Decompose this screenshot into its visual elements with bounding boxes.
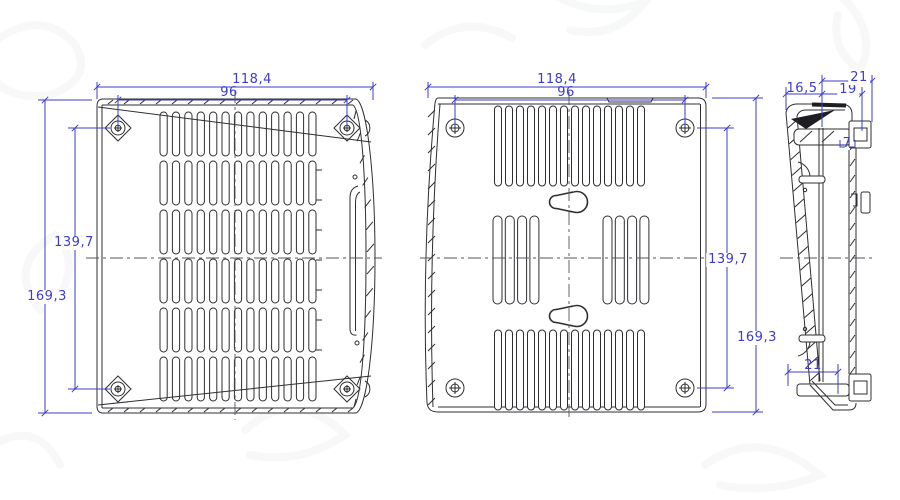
dim-side-depth-inner: 19 [837, 83, 859, 97]
dim-rear-width-holes: 96 [557, 86, 575, 100]
dim-side-depth-face: 16,5 [787, 82, 818, 96]
dim-side-clip-offset: 7 [843, 137, 852, 151]
dim-front-width-holes: 96 [220, 86, 238, 100]
dim-rear-height-outer: 169,3 [735, 331, 779, 345]
cad-drawing-sheet: 118,4 96 139,7 169,3 118,4 96 139,7 169,… [0, 0, 900, 500]
side-view-drawing [780, 104, 876, 410]
dim-rear-height-holes: 139,7 [706, 253, 750, 267]
side-wall-hatch [788, 120, 855, 390]
rear-view-drawing [420, 92, 718, 420]
dim-side-base-width: 21 [804, 359, 822, 373]
dim-front-height-outer: 169,3 [25, 290, 69, 304]
front-view-drawing [86, 90, 382, 420]
dim-front-width-outer: 118,4 [232, 73, 272, 87]
side-mid-tab [861, 192, 870, 213]
dim-side-depth-outer: 21 [848, 71, 870, 85]
cad-canvas [0, 0, 900, 500]
side-bottom-clip [849, 374, 871, 401]
side-top-clip [849, 121, 871, 148]
dim-front-height-holes: 139,7 [52, 236, 96, 250]
